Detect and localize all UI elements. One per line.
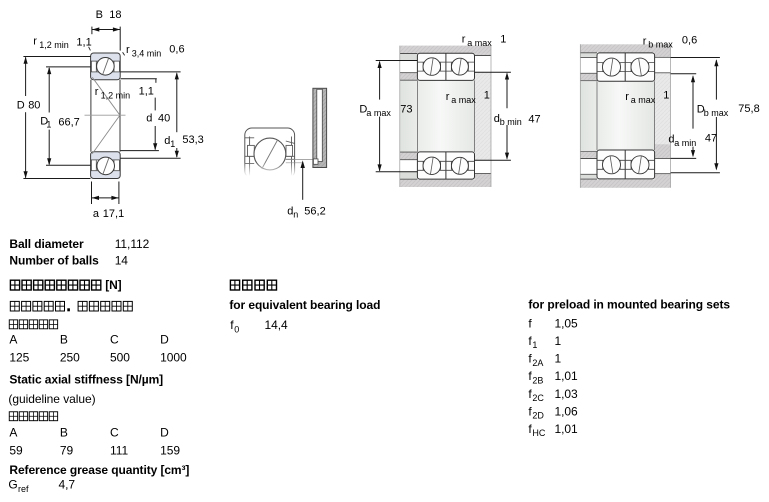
svg-text:1,1: 1,1 bbox=[139, 86, 154, 98]
svg-text:a max: a max bbox=[366, 108, 391, 118]
svg-text:G: G bbox=[8, 478, 17, 492]
svg-text:0,6: 0,6 bbox=[682, 35, 697, 47]
svg-text:159: 159 bbox=[160, 444, 180, 458]
svg-text:1000: 1000 bbox=[160, 350, 187, 364]
svg-text:56,2: 56,2 bbox=[304, 206, 325, 218]
svg-text:1,01: 1,01 bbox=[555, 422, 579, 436]
svg-text:Ball diameter: Ball diameter bbox=[9, 237, 84, 251]
svg-text:1: 1 bbox=[555, 334, 562, 348]
svg-text:C: C bbox=[110, 333, 119, 347]
svg-text:17,1: 17,1 bbox=[103, 208, 124, 220]
svg-text:2D: 2D bbox=[532, 411, 544, 421]
svg-text:1,2 min: 1,2 min bbox=[101, 90, 131, 100]
svg-text:b max: b max bbox=[704, 108, 729, 118]
svg-text:2C: 2C bbox=[532, 393, 544, 403]
svg-text:1,03: 1,03 bbox=[555, 387, 579, 401]
svg-text:C: C bbox=[110, 425, 119, 439]
svg-text:[N]: [N] bbox=[105, 278, 121, 292]
svg-text:ref: ref bbox=[18, 484, 29, 494]
svg-text:1: 1 bbox=[500, 34, 506, 46]
svg-text:a: a bbox=[93, 208, 100, 220]
svg-text:d: d bbox=[146, 112, 152, 124]
svg-text:111: 111 bbox=[110, 444, 128, 458]
svg-text:a max: a max bbox=[631, 95, 656, 105]
svg-text:a max: a max bbox=[467, 38, 492, 48]
svg-text:1: 1 bbox=[663, 90, 669, 102]
svg-text:a min: a min bbox=[674, 138, 696, 148]
svg-text:r: r bbox=[446, 91, 450, 103]
svg-text:66,7: 66,7 bbox=[58, 116, 79, 128]
svg-text:b max: b max bbox=[648, 39, 673, 49]
svg-text:for equivalent bearing load: for equivalent bearing load bbox=[229, 298, 380, 312]
svg-text:r: r bbox=[126, 44, 130, 56]
svg-text:Reference grease quantity [cm³: Reference grease quantity [cm³] bbox=[9, 463, 189, 477]
svg-text:1,06: 1,06 bbox=[555, 404, 579, 418]
svg-text:1,1: 1,1 bbox=[76, 36, 91, 48]
svg-text:79: 79 bbox=[60, 444, 74, 458]
svg-text:2B: 2B bbox=[532, 375, 543, 385]
svg-text:1: 1 bbox=[46, 120, 51, 130]
svg-text:A: A bbox=[9, 333, 17, 347]
svg-text:n: n bbox=[293, 210, 298, 220]
svg-text:(guideline value): (guideline value) bbox=[8, 392, 95, 406]
svg-text:D: D bbox=[160, 333, 169, 347]
svg-text:b min: b min bbox=[500, 117, 522, 127]
svg-text:r: r bbox=[462, 34, 466, 46]
svg-text:3,4 min: 3,4 min bbox=[132, 49, 162, 59]
svg-text:r: r bbox=[95, 86, 99, 98]
svg-text:Number of balls: Number of balls bbox=[9, 253, 99, 267]
svg-text:1,2 min: 1,2 min bbox=[39, 40, 69, 50]
svg-text:a max: a max bbox=[451, 95, 476, 105]
svg-text:r: r bbox=[625, 91, 629, 103]
svg-text:75,8: 75,8 bbox=[738, 103, 759, 115]
svg-text:B: B bbox=[60, 333, 68, 347]
svg-text:1,01: 1,01 bbox=[555, 369, 579, 383]
svg-text:11,112: 11,112 bbox=[115, 237, 150, 251]
svg-text:Static axial stiffness [N/µm]: Static axial stiffness [N/µm] bbox=[9, 373, 163, 387]
svg-text:80: 80 bbox=[28, 99, 40, 111]
svg-text:for preload in mounted bearing: for preload in mounted bearing sets bbox=[528, 297, 730, 311]
svg-text:2A: 2A bbox=[532, 358, 543, 368]
svg-text:1: 1 bbox=[555, 352, 562, 366]
svg-text:500: 500 bbox=[110, 350, 130, 364]
svg-text:B: B bbox=[96, 9, 103, 21]
svg-text:0: 0 bbox=[234, 324, 239, 334]
svg-text:0,6: 0,6 bbox=[169, 43, 184, 55]
svg-text:HC: HC bbox=[532, 428, 545, 438]
svg-text:125: 125 bbox=[9, 350, 29, 364]
svg-text:B: B bbox=[60, 425, 68, 439]
svg-text:250: 250 bbox=[60, 350, 80, 364]
svg-text:A: A bbox=[9, 425, 17, 439]
svg-text:18: 18 bbox=[109, 9, 121, 21]
svg-text:4,7: 4,7 bbox=[59, 478, 76, 492]
svg-text:1: 1 bbox=[532, 340, 537, 350]
svg-text:D: D bbox=[17, 99, 25, 111]
svg-text:40: 40 bbox=[158, 112, 170, 124]
svg-text:59: 59 bbox=[9, 444, 23, 458]
svg-text:r: r bbox=[33, 36, 37, 48]
svg-text:1: 1 bbox=[170, 139, 175, 149]
svg-text:14,4: 14,4 bbox=[265, 318, 289, 332]
svg-text:r: r bbox=[643, 35, 647, 47]
svg-text:14: 14 bbox=[115, 253, 129, 267]
svg-text:1: 1 bbox=[484, 90, 490, 102]
svg-text:47: 47 bbox=[705, 133, 717, 145]
svg-text:47: 47 bbox=[528, 113, 540, 125]
svg-text:53,3: 53,3 bbox=[182, 134, 203, 146]
svg-text:73: 73 bbox=[400, 104, 412, 116]
svg-text:D: D bbox=[160, 425, 169, 439]
svg-text:1,05: 1,05 bbox=[555, 316, 579, 330]
